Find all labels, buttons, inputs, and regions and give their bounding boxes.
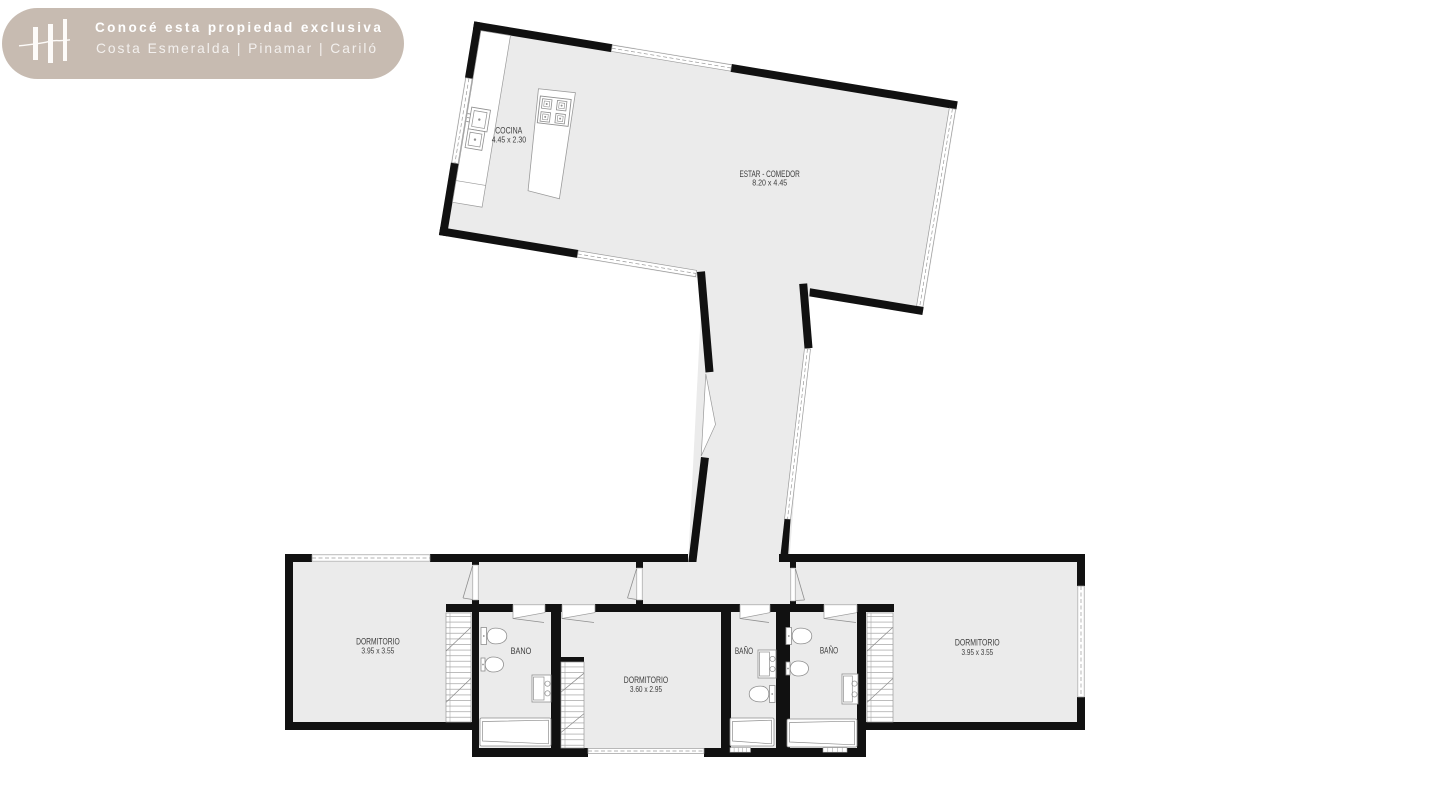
svg-text:BANO: BANO [511, 646, 532, 656]
svg-text:3.95 x 3.55: 3.95 x 3.55 [962, 647, 994, 657]
svg-text:BAÑO: BAÑO [820, 646, 838, 656]
svg-text:BAÑO: BAÑO [735, 646, 753, 656]
svg-text:3.60 x 2.95: 3.60 x 2.95 [630, 684, 662, 694]
svg-text:8.20 x 4.45: 8.20 x 4.45 [752, 177, 787, 187]
svg-text:DORMITORIO: DORMITORIO [955, 637, 1000, 647]
svg-text:4.45 x 2.30: 4.45 x 2.30 [492, 134, 527, 144]
svg-text:3.95 x 3.55: 3.95 x 3.55 [361, 646, 394, 656]
